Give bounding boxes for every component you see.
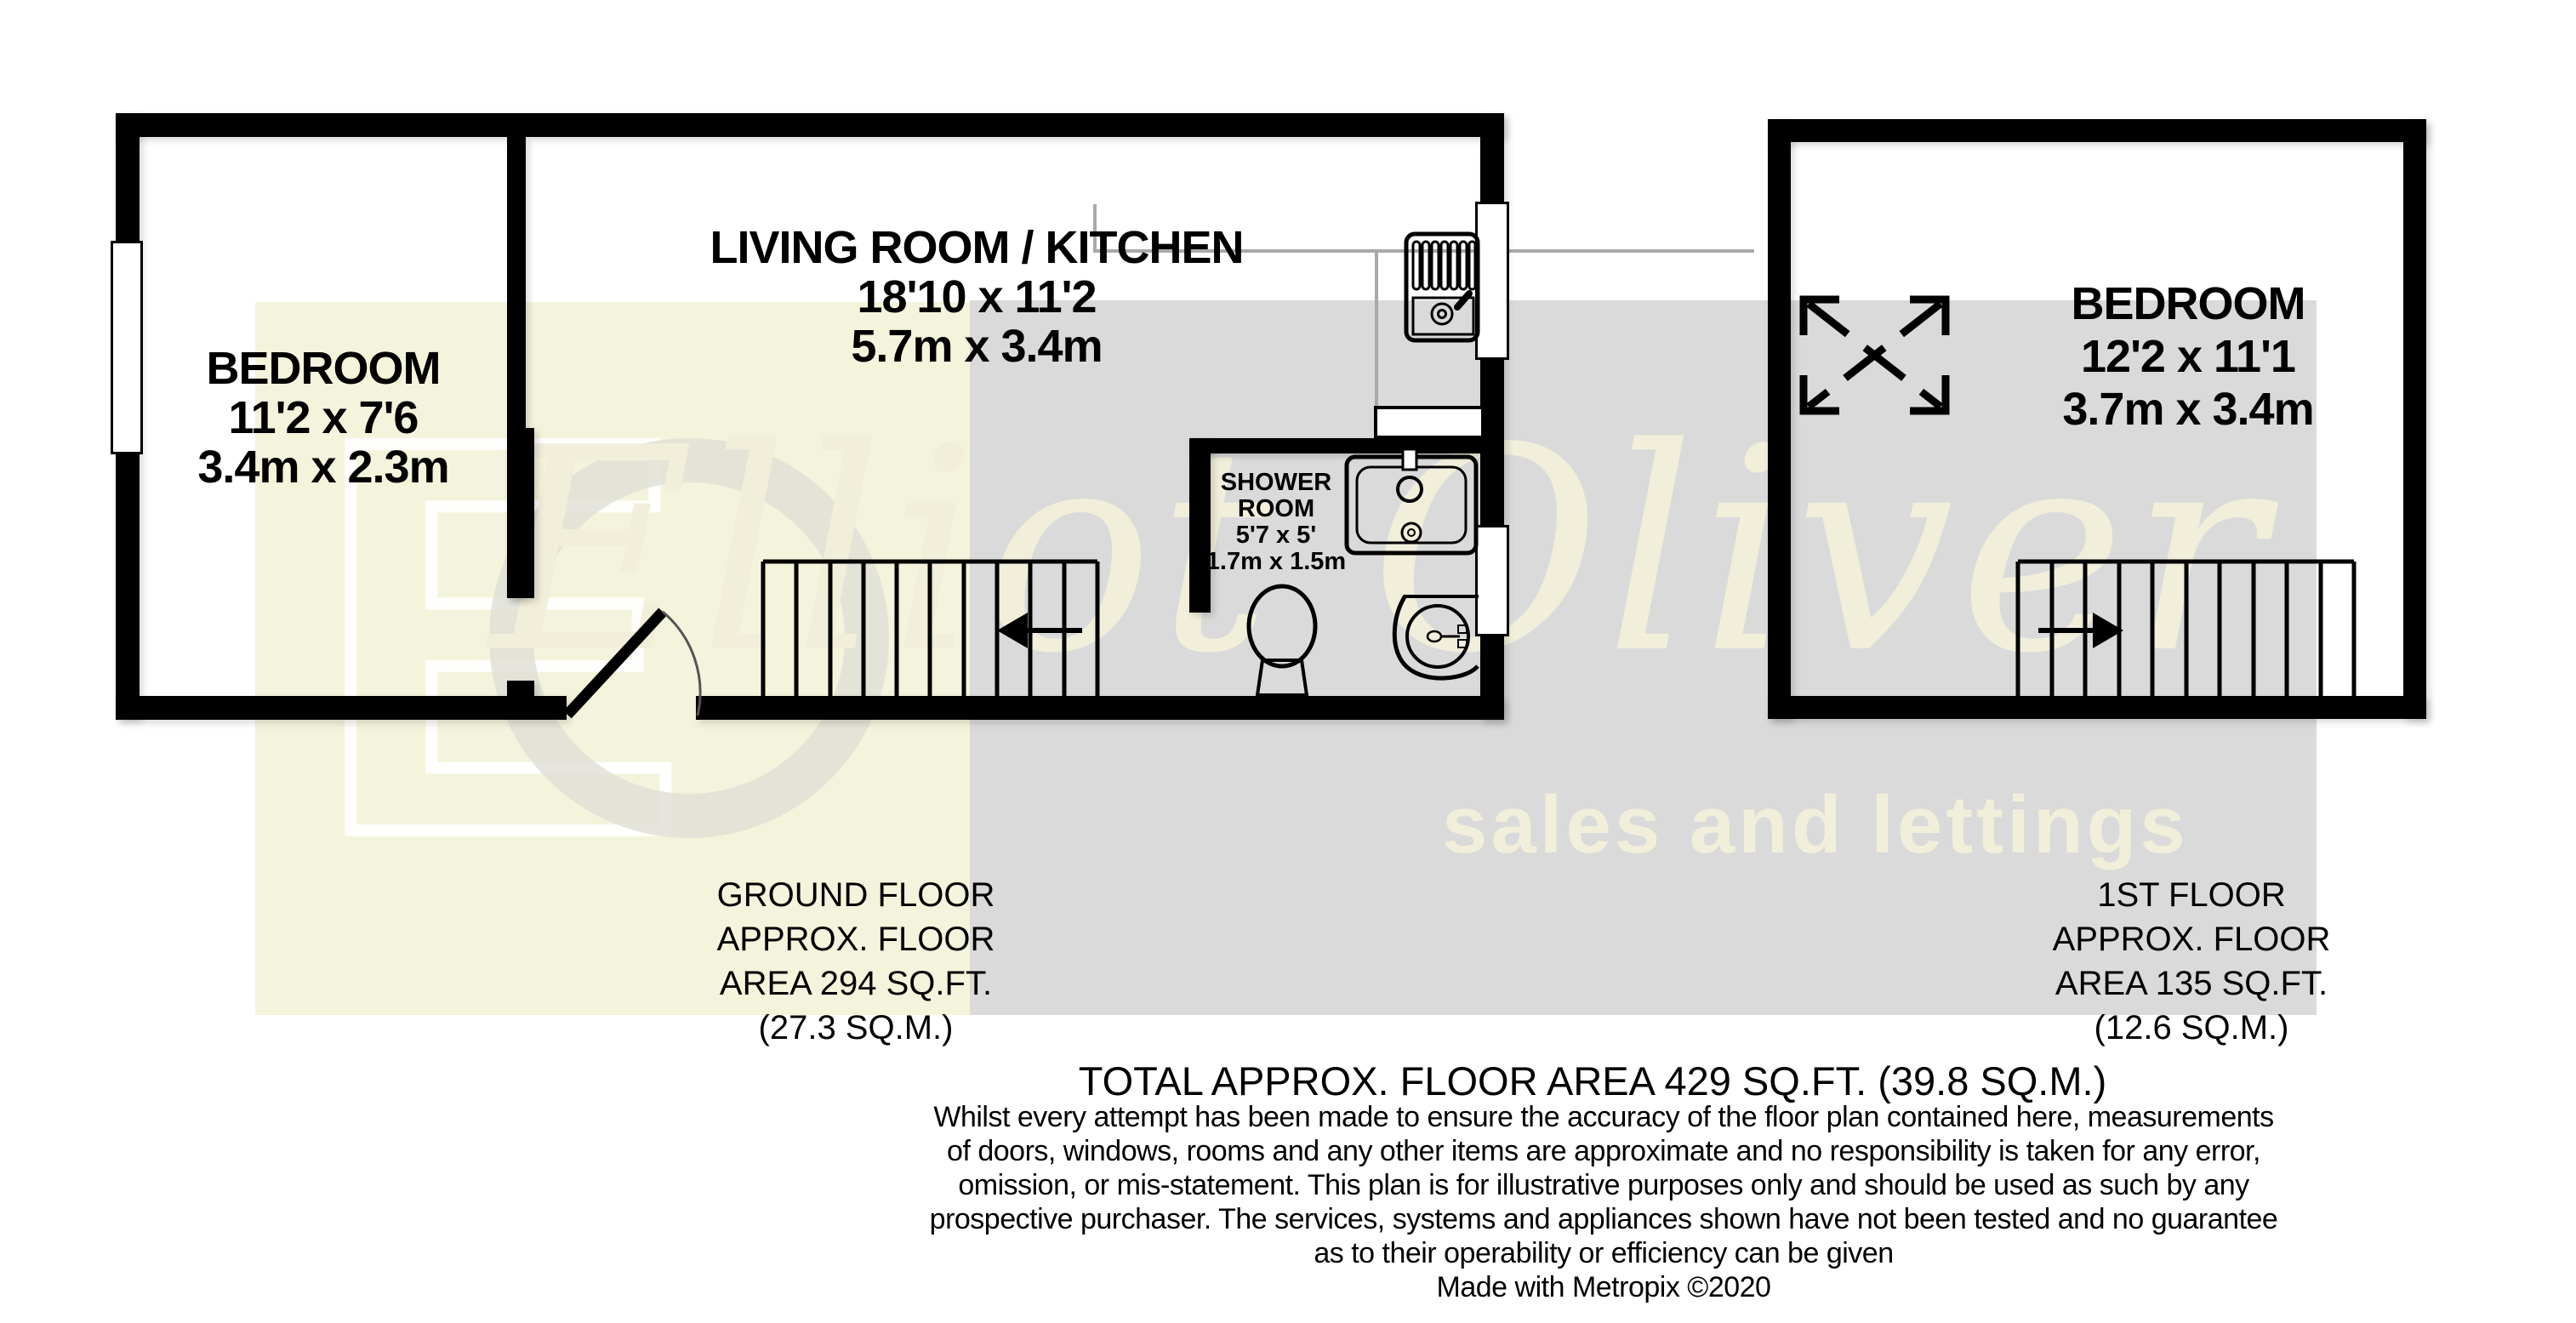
entrance-door-icon (567, 612, 700, 716)
summary-line: (27.3 SQ.M.) (717, 1006, 995, 1050)
label-living-kitchen: LIVING ROOM / KITCHEN 18'10 x 11'2 5.7m … (710, 223, 1244, 371)
summary-line: AREA 135 SQ.FT. (2053, 961, 2331, 1006)
disclaimer-line: Whilst every attempt has been made to en… (930, 1100, 2278, 1134)
floorplan-page: E Elliot Oliver sales and lettings (0, 0, 2576, 1323)
label-shower-room: SHOWER ROOM 5'7 x 5' 1.7m x 1.5m (1206, 470, 1346, 575)
summary-line: APPROX. FLOOR (2053, 917, 2331, 961)
room-name: SHOWER (1206, 470, 1346, 496)
metropix-credit: Made with Metropix ©2020 (930, 1270, 2278, 1304)
kitchen-sink-icon (1406, 234, 1478, 340)
ground-floor-summary: GROUND FLOOR APPROX. FLOOR AREA 294 SQ.F… (717, 873, 995, 1050)
disclaimer-line: as to their operability or efficiency ca… (930, 1236, 2278, 1270)
disclaimer-line: prospective purchaser. The services, sys… (930, 1202, 2278, 1236)
room-name: LIVING ROOM / KITCHEN (710, 223, 1244, 272)
room-size-metric: 5.7m x 3.4m (710, 322, 1244, 371)
summary-line: 1ST FLOOR (2053, 873, 2331, 917)
first-floor-summary: 1ST FLOOR APPROX. FLOOR AREA 135 SQ.FT. … (2053, 873, 2331, 1050)
room-name: BEDROOM (197, 344, 448, 393)
summary-line: AREA 294 SQ.FT. (717, 961, 995, 1006)
summary-line: APPROX. FLOOR (717, 917, 995, 961)
toilet-icon (1249, 586, 1315, 695)
room-size-imperial: 5'7 x 5' (1206, 522, 1346, 549)
room-name: ROOM (1206, 496, 1346, 522)
room-size-imperial: 12'2 x 11'1 (2062, 330, 2313, 383)
disclaimer-line: of doors, windows, rooms and any other i… (930, 1134, 2278, 1168)
total-floor-area: TOTAL APPROX. FLOOR AREA 429 SQ.FT. (39.… (1079, 1058, 2106, 1104)
room-size-imperial: 11'2 x 7'6 (197, 393, 448, 442)
washbasin-icon (1347, 449, 1476, 553)
room-size-metric: 3.7m x 3.4m (2062, 383, 2313, 436)
worktop-icon (1376, 408, 1483, 437)
shower-icon (1394, 596, 1479, 678)
room-size-metric: 3.4m x 2.3m (197, 442, 448, 492)
stairs-down-arrow-icon (997, 613, 1082, 648)
disclaimer-text: Whilst every attempt has been made to en… (930, 1100, 2278, 1304)
disclaimer-line: omission, or mis-statement. This plan is… (930, 1168, 2278, 1202)
label-bedroom-first: BEDROOM 12'2 x 11'1 3.7m x 3.4m (2062, 277, 2313, 436)
summary-line: (12.6 SQ.M.) (2053, 1006, 2331, 1050)
room-name: BEDROOM (2062, 277, 2313, 330)
room-size-metric: 1.7m x 1.5m (1206, 549, 1346, 575)
label-bedroom-ground: BEDROOM 11'2 x 7'6 3.4m x 2.3m (197, 344, 448, 492)
void-x-icon (1804, 299, 1946, 411)
room-size-imperial: 18'10 x 11'2 (710, 272, 1244, 322)
summary-line: GROUND FLOOR (717, 873, 995, 917)
